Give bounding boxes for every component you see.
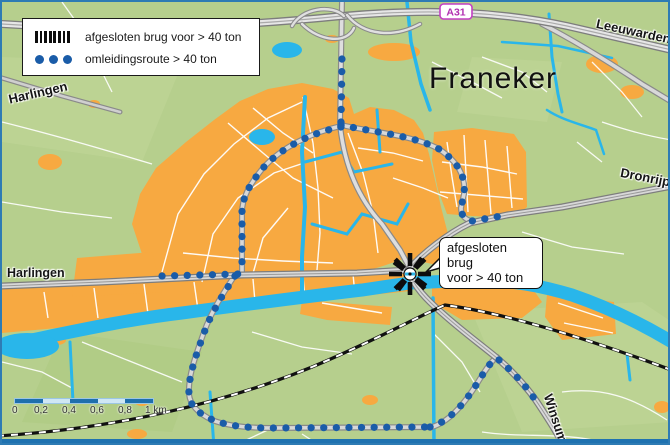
callout-line1: afgesloten brug (447, 240, 535, 270)
legend-item-closed-bridge: afgesloten brug voor > 40 ton (35, 26, 249, 48)
closed-bridge-marker (389, 253, 431, 295)
closed-bridge-callout: afgesloten brug voor > 40 ton (439, 237, 543, 289)
callout-line2: voor > 40 ton (447, 270, 535, 285)
svg-text:A31: A31 (446, 7, 465, 19)
legend-item-label: omleidingsroute > 40 ton (85, 52, 217, 66)
detour-dots-icon (35, 55, 79, 64)
closed-bridge-bars-icon (35, 31, 79, 43)
legend-item-detour: omleidingsroute > 40 ton (35, 48, 249, 70)
map-frame-bottom (2, 439, 670, 443)
legend: afgesloten brug voor > 40 ton omleidings… (22, 18, 260, 76)
legend-item-label: afgesloten brug voor > 40 ton (85, 30, 241, 44)
a31-badge: A31 (440, 4, 472, 19)
map-viewport: A31 Franeker Leeuwarden Harlingen Harlin… (0, 0, 670, 445)
place-label-franeker: Franeker (429, 62, 557, 96)
detour-west-run (162, 274, 239, 276)
